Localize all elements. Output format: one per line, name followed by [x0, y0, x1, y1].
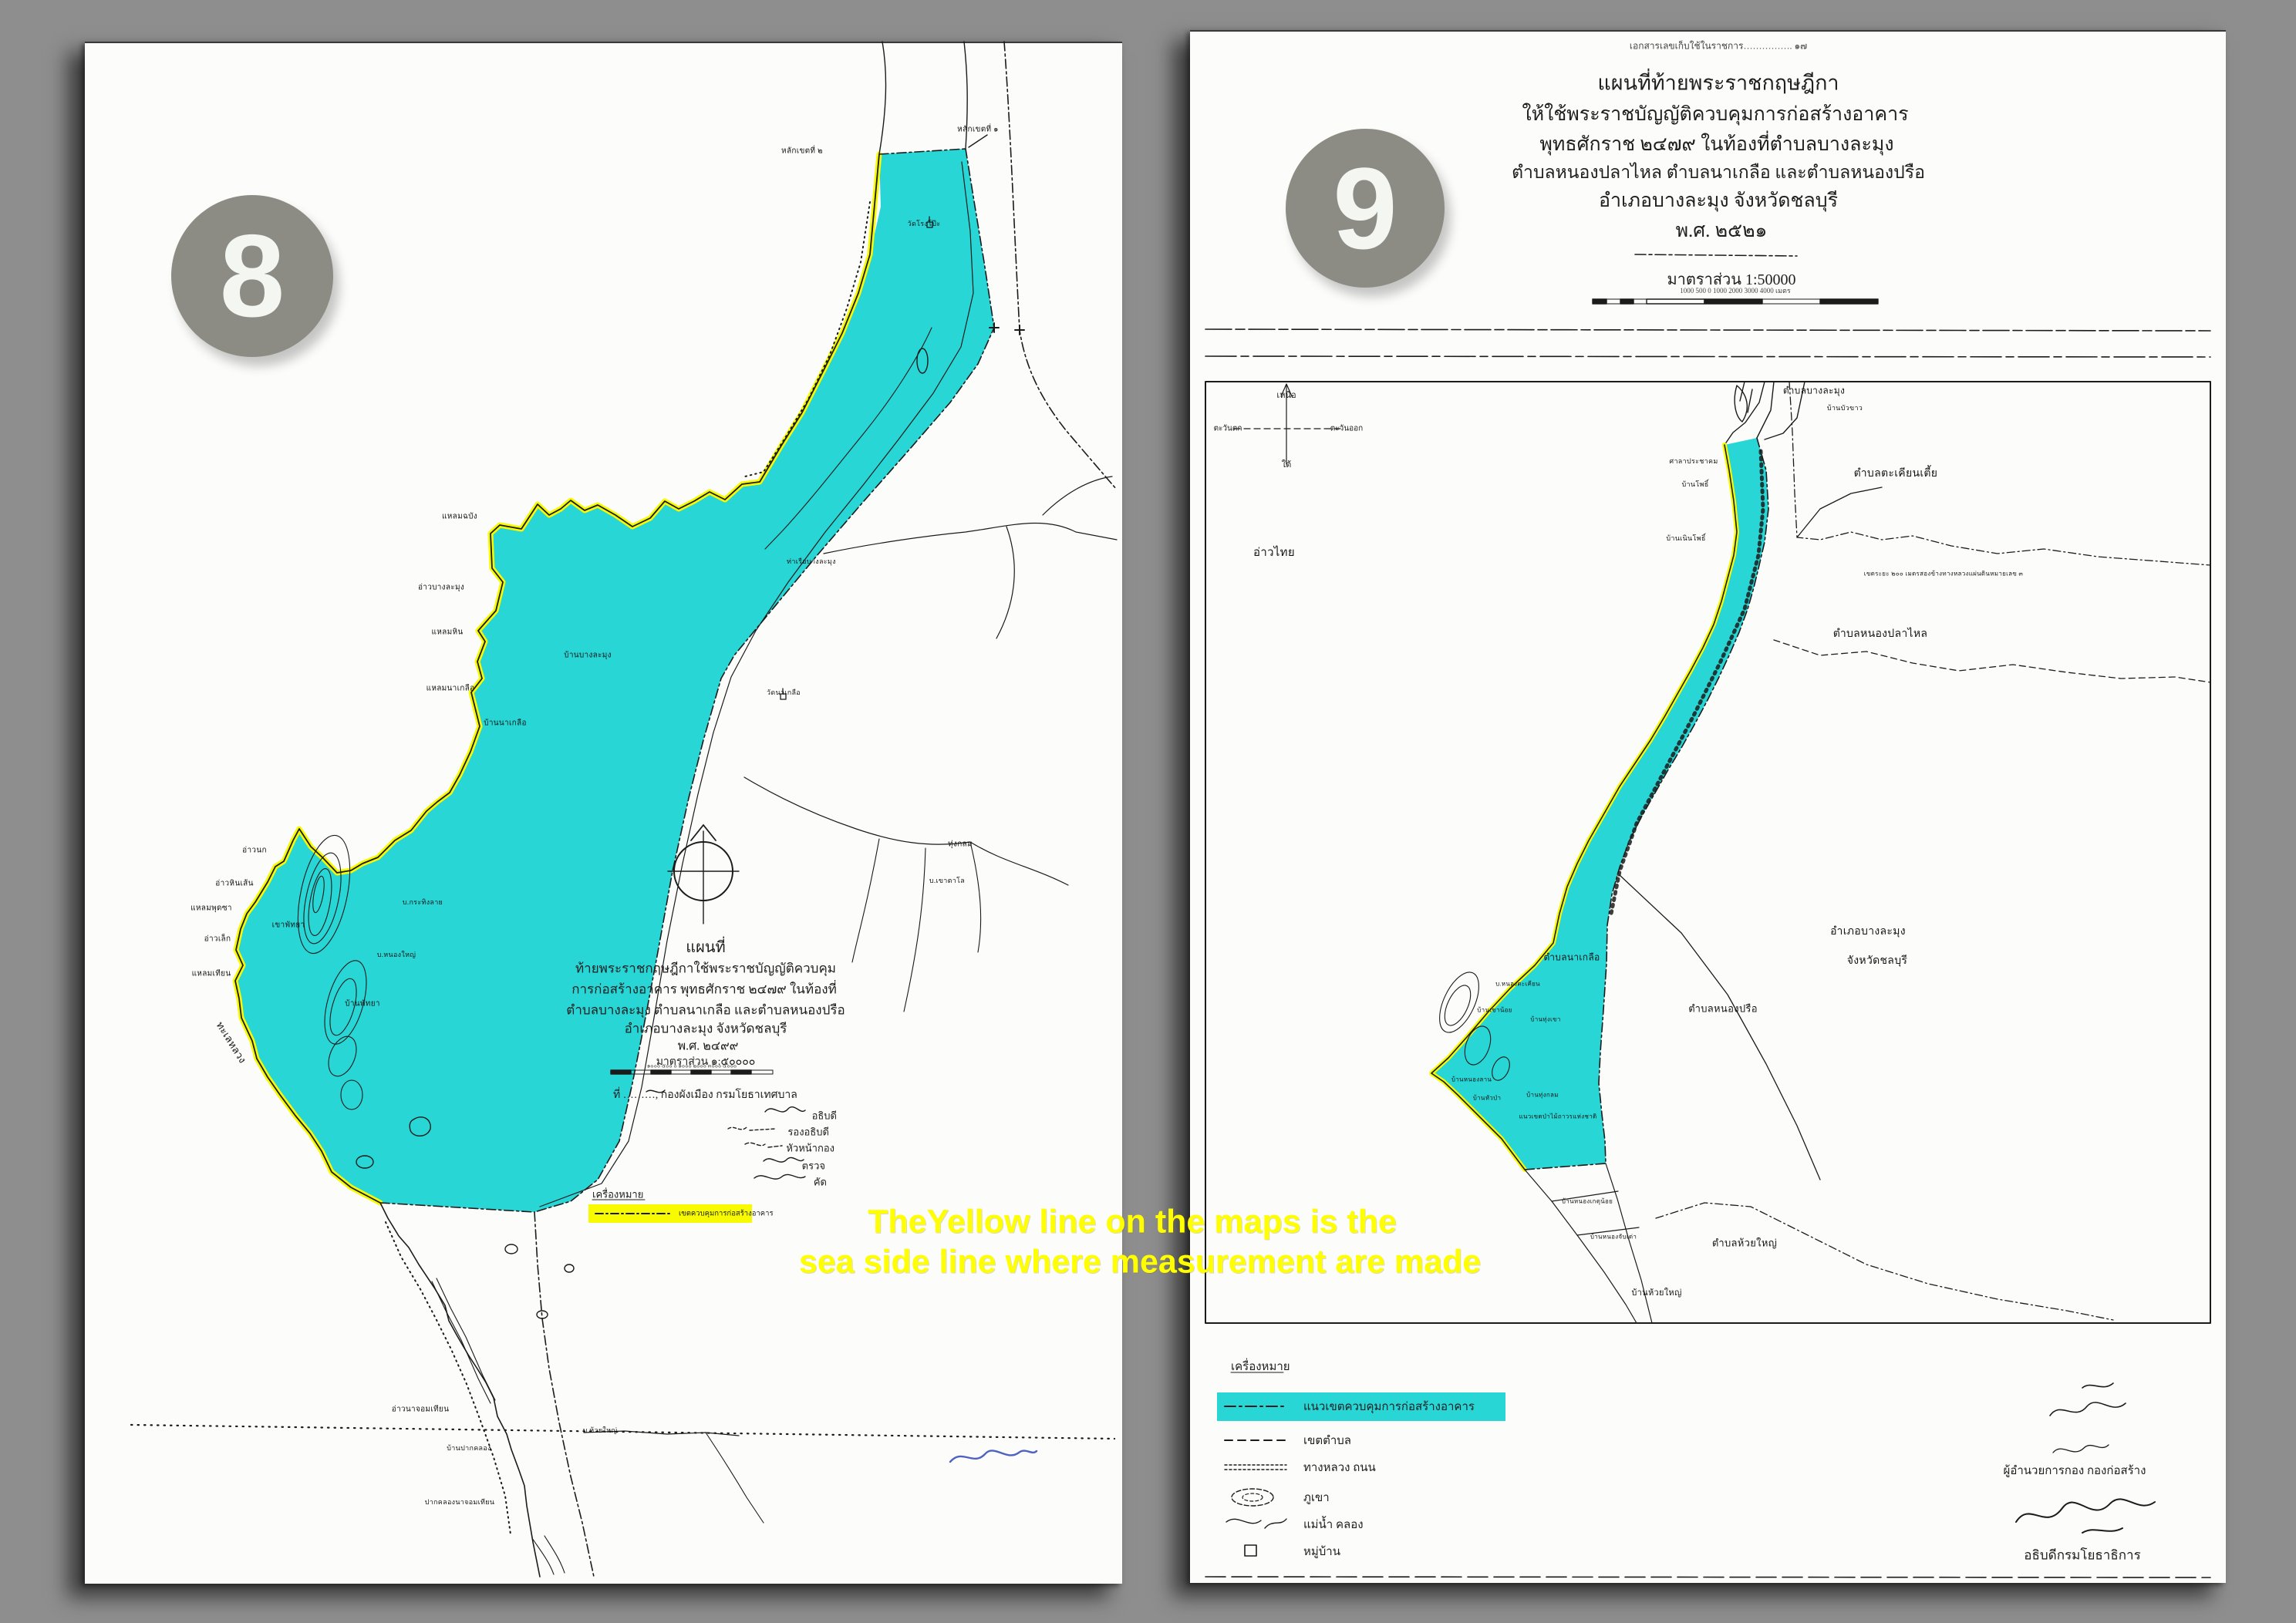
compass-west-label: ตะวันตก	[1214, 423, 1242, 435]
map-place-label: อ่าวนาจอมเทียน	[392, 1404, 449, 1416]
map-place-label: อ่าวนก	[242, 845, 267, 857]
scanned-maps-canvas: แผนที่ ท้ายพระราชกฤษฎีกาใช้พระราชบัญญัติ…	[0, 0, 2296, 1623]
map9-title-line: อำเภอบางละมุง จังหวัดชลบุรี	[1599, 185, 1838, 216]
map-place-label: บ.ห้วยใหญ่	[583, 1425, 618, 1436]
map-place-label: แหลมพุดซา	[190, 903, 232, 914]
map8-sign-row: รองอธิบดี	[787, 1124, 829, 1140]
map-place-label: ตำบลนาเกลือ	[1543, 951, 1600, 965]
map-place-label: วัดนาเกลือ	[767, 687, 801, 698]
map8-legend-heading: เครื่องหมาย	[592, 1187, 643, 1203]
map9-legend-row-label: ภูเขา	[1303, 1488, 1330, 1507]
map8-legend-zone-label: เขตควบคุมการก่อสร้างอาคาร	[679, 1208, 774, 1220]
map-place-label: ตำบลตะเคียนเตี้ย	[1854, 465, 1938, 482]
map-place-label: เขาพัทยา	[272, 920, 305, 931]
map9-legend-row-label: แนวเขตควบคุมการก่อสร้างอาคาร	[1303, 1397, 1475, 1416]
map-place-label: บ้านบางละมุง	[564, 650, 612, 662]
map-place-label: จังหวัดชลบุรี	[1847, 952, 1907, 969]
map-place-label: บ้านบัวขาว	[1827, 402, 1863, 413]
map-place-label: บ.กระทิงลาย	[403, 897, 443, 907]
map-place-label: ทุ่งกลม	[948, 839, 973, 850]
compass-east-label: ตะวันออก	[1330, 423, 1363, 435]
map9-legend-row-label: เขตตำบล	[1303, 1431, 1351, 1450]
map9-legend-row-label: ทางหลวง ถนน	[1303, 1458, 1376, 1477]
map8-title-line: อำเภอบางละมุง จังหวัดชลบุรี	[625, 1019, 787, 1039]
map9-title-line: ตำบลหนองปลาไหล ตำบลนาเกลือ และตำบลหนองปร…	[1512, 159, 1925, 187]
map-place-label: บ้านหนองจับเต่า	[1590, 1232, 1637, 1242]
map-place-label: บ้านหนองเกตุน้อย	[1562, 1197, 1613, 1207]
map9-title-line: แผนที่ท้ายพระราชกฤษฎีกา	[1597, 66, 1839, 99]
map-place-label: อำเภอบางละมุง	[1830, 923, 1906, 940]
map-place-label: อ่าวบางละมุง	[418, 582, 464, 594]
map9-legend-heading: เครื่องหมาย	[1231, 1357, 1290, 1376]
map-place-label: แนวเขตป่าไม้ถาวรแห่งชาติ	[1519, 1112, 1597, 1122]
annotation-line-2: sea side line where measurement are made	[799, 1244, 1481, 1281]
map-place-label: วัดโรงโป๊ะ	[908, 218, 941, 229]
figure-number-badge-9: 9	[1286, 129, 1445, 288]
map-place-label: ตำบลหนองปลาไหล	[1833, 625, 1928, 642]
compass-south-label: ใต้	[1282, 457, 1292, 471]
map-place-label: บ้านนาเกลือ	[484, 718, 527, 729]
map-place-label: บ้านทุ่งกลม	[1526, 1090, 1559, 1100]
map-place-label: ตำบลหนองปรือ	[1688, 1001, 1758, 1017]
map8-title-line: แผนที่	[686, 934, 725, 959]
map-place-label: อ่าวเล็ก	[204, 934, 231, 945]
figure-number-badge-8: 8	[171, 195, 333, 357]
map-place-label: ท่าเรือบางละมุง	[787, 556, 836, 567]
map9-legend-row-label: หมู่บ้าน	[1303, 1542, 1340, 1561]
map8-sign-row: คัด	[814, 1174, 827, 1190]
map8-title-line: ท้ายพระราชกฤษฎีกาใช้พระราชบัญญัติควบคุม	[575, 958, 836, 979]
map8-sign-row: ตรวจ	[802, 1158, 825, 1174]
map-place-label: แหลมเทียน	[192, 968, 231, 980]
map-place-label: บ้านโพธิ์	[1682, 479, 1709, 490]
map8-title-line: การก่อสร้างอาคาร พุทธศักราช ๒๔๗๙ ในท้องท…	[571, 979, 837, 1000]
map-place-label: แหลมฉบัง	[442, 511, 477, 523]
annotation-line-1: TheYellow line on the maps is the	[868, 1204, 1397, 1241]
map9-title-line: ให้ใช้พระราชบัญญัติควบคุมการก่อสร้างอาคา…	[1522, 99, 1908, 130]
map-place-label: ศาลาประชาคม	[1669, 456, 1718, 466]
map-place-label: บ้านพัทยา	[345, 998, 380, 1010]
map-place-label: เขตระยะ ๒๐๐ เมตรสองข้างทางหลวงแผ่นดินหมา…	[1864, 569, 2023, 579]
map9-signature-caption: อธิบดีกรมโยธาธิการ	[2024, 1545, 2140, 1566]
map-place-label: อ่าวหินเส้น	[215, 878, 253, 890]
map8-sign-row: อธิบดี	[812, 1108, 837, 1124]
map-place-label: บ้านเขาน้อย	[1477, 1005, 1512, 1015]
map-place-label: บ้านหนองลาน	[1451, 1075, 1492, 1085]
map8-sign-row: หัวหน้ากอง	[786, 1140, 834, 1157]
map-place-label: แหลมนาเกลือ	[426, 683, 475, 695]
map8-office-line: ที่ ………, กองผังเมือง กรมโยธาเทศบาล	[613, 1086, 797, 1103]
map8-title-line: ตำบลบางละมุง ตำบลนาเกลือ และตำบลหนองปรือ	[566, 1000, 845, 1021]
map-place-label: อ่าวไทย	[1253, 543, 1295, 561]
map-place-label: บ้านหัวป่า	[1473, 1093, 1501, 1103]
map-place-label: ปากคลองนาจอมเทียน	[425, 1497, 495, 1507]
map9-title-line: พ.ศ. ๒๕๒๑	[1676, 215, 1768, 246]
map8-scale-numbers: ๑๐๐๐ ๕๐๐ ๐ ๑๐๐๐ ๒๐๐๐ ๓๐๐๐ ๔๐๐๐	[647, 1062, 737, 1071]
map-place-label: บ้านเนินโพธิ์	[1666, 533, 1705, 544]
map-place-label: บ.หนองตะเคียน	[1495, 979, 1540, 989]
map-place-label: แหลมหิน	[432, 627, 464, 638]
map-place-label: บ.เขาตาโล	[929, 875, 965, 886]
compass-north-label: เหนือ	[1276, 388, 1296, 402]
map9-title-line: พุทธศักราช ๒๔๗๙ ในท้องที่ตำบลบางละมุง	[1539, 129, 1893, 160]
map-place-label: บ้านห้วยใหญ่	[1631, 1285, 1681, 1299]
map-place-label: ตำบลบางละมุง	[1783, 384, 1845, 399]
map-place-label: หลักเขตที่ ๒	[781, 146, 823, 157]
map-place-label: ตำบลห้วยใหญ่	[1712, 1235, 1777, 1251]
map9-scale-numbers: 1000 500 0 1000 2000 3000 4000 เมตร	[1680, 285, 1790, 296]
map9-legend-row-label: แม่น้ำ คลอง	[1303, 1515, 1364, 1534]
map-place-label: บ.หนองใหญ่	[377, 949, 416, 960]
map-place-label: บ้านทุ่งเขา	[1530, 1015, 1560, 1025]
map-place-label: บ้านปากคลอง	[447, 1443, 491, 1453]
map9-signature-caption: ผู้อำนวยการกอง กองก่อสร้าง	[2004, 1461, 2146, 1480]
map-place-label: หลักเขตที่ ๑	[957, 124, 999, 136]
map9-doc-ref: เอกสารเลขเก็บใช้ในราชการ……………. ๑๗	[1630, 39, 1807, 54]
